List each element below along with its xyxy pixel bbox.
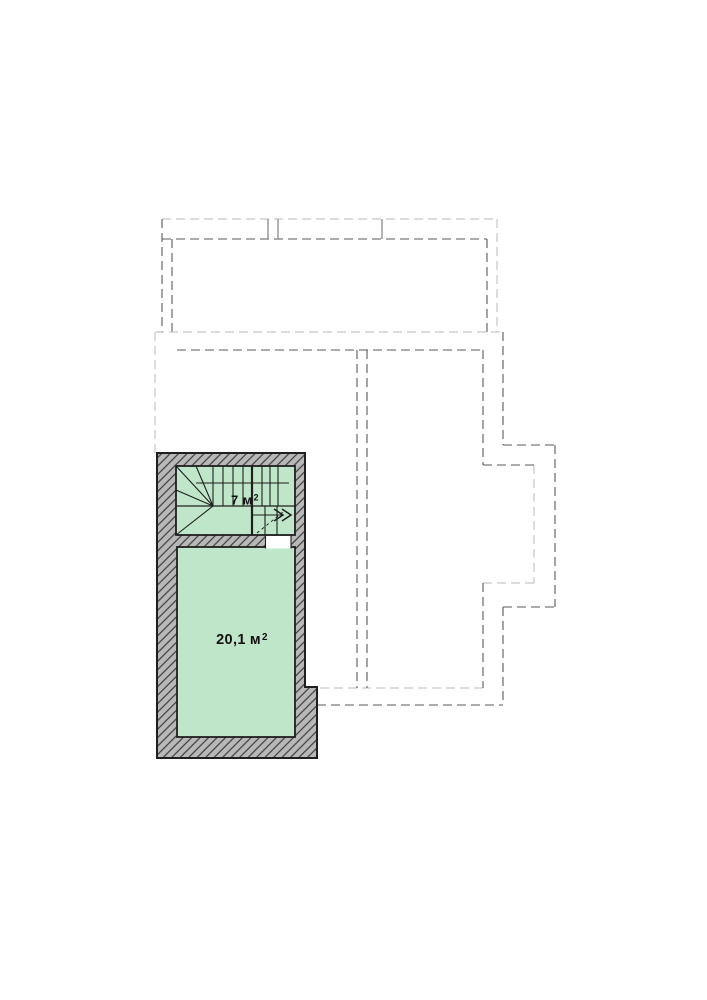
area-value: 20,1 [216, 632, 246, 648]
area-exponent: 2 [262, 632, 268, 643]
staircase-area-label: 7м2 [231, 493, 259, 508]
area-value: 7 [231, 493, 239, 508]
floor-plan-drawing [0, 0, 707, 1000]
floor-plan-canvas: 7м2 20,1м2 [0, 0, 707, 1000]
area-unit: м [243, 493, 253, 508]
pillar-marks [268, 219, 382, 239]
door-opening [266, 536, 292, 549]
main-room-area-label: 20,1м2 [216, 632, 268, 648]
area-exponent: 2 [254, 493, 259, 503]
area-unit: м [250, 632, 261, 648]
lower-floor-outline-top-block [162, 219, 497, 332]
